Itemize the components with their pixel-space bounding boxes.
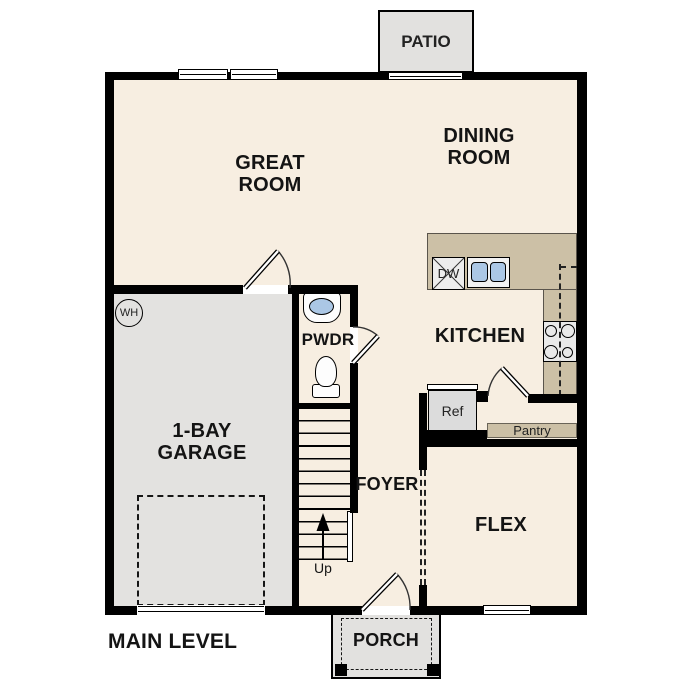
toilet-icon <box>310 356 342 400</box>
pantry-label: Pantry <box>488 424 576 437</box>
patio-label: PATIO <box>380 12 472 71</box>
porch-post-right <box>427 664 439 676</box>
powder-sink-icon <box>303 292 341 323</box>
wall-stair-top <box>292 403 358 409</box>
kitchen-label: KITCHEN <box>405 325 555 347</box>
wall-kitchen-door-right <box>528 394 577 403</box>
garage-door-clearance-dashed <box>137 495 265 606</box>
dishwasher-icon: DW <box>432 257 465 290</box>
great-room-door-opening <box>243 285 288 294</box>
floorplan-page: { "plan": { "title": "MAIN LEVEL", "room… <box>0 0 687 687</box>
dishwasher-label: DW <box>433 258 464 289</box>
patio-area: PATIO <box>378 10 474 73</box>
wall-left <box>105 72 114 615</box>
wall-pantry-bottom <box>487 439 577 447</box>
main-level-label: MAIN LEVEL <box>103 630 258 654</box>
stairs-up-label: Up <box>307 561 339 577</box>
flex-label: FLEX <box>441 514 561 536</box>
stove-burner <box>561 324 575 338</box>
wall-pantry-top-stub <box>477 391 488 402</box>
great-room-window-left <box>178 69 228 80</box>
porch-post-left <box>335 664 347 676</box>
pantry-shelf: Pantry <box>487 423 577 438</box>
water-heater-label: WH <box>116 300 142 326</box>
stove-burner <box>562 347 573 358</box>
patio-sliding-door <box>388 72 463 80</box>
kitchen-sink-icon <box>467 257 510 288</box>
garage-door <box>137 605 265 615</box>
dining-room-label: DINING ROOM <box>416 125 542 170</box>
porch-area: PORCH <box>331 611 441 679</box>
wall-garage-top <box>105 285 358 294</box>
wall-below-ref <box>419 430 487 447</box>
front-door-opening <box>362 606 410 615</box>
wall-stair-right <box>350 409 358 513</box>
foyer-label: FOYER <box>337 474 437 494</box>
wall-flex-left-stub <box>419 585 427 607</box>
stair-railing <box>347 511 353 562</box>
counter-dashed-corner <box>560 266 577 268</box>
great-room-window-right <box>230 69 278 80</box>
powder-label: PWDR <box>293 330 363 349</box>
water-heater-icon: WH <box>115 299 143 327</box>
flex-window <box>483 605 531 615</box>
refrigerator-label: Ref <box>429 391 476 430</box>
wall-right <box>577 72 587 615</box>
refrigerator-icon: Ref <box>428 390 477 431</box>
porch-label: PORCH <box>333 630 439 650</box>
garage-label: 1-BAY GARAGE <box>137 420 267 465</box>
great-room-label: GREAT ROOM <box>205 152 335 197</box>
